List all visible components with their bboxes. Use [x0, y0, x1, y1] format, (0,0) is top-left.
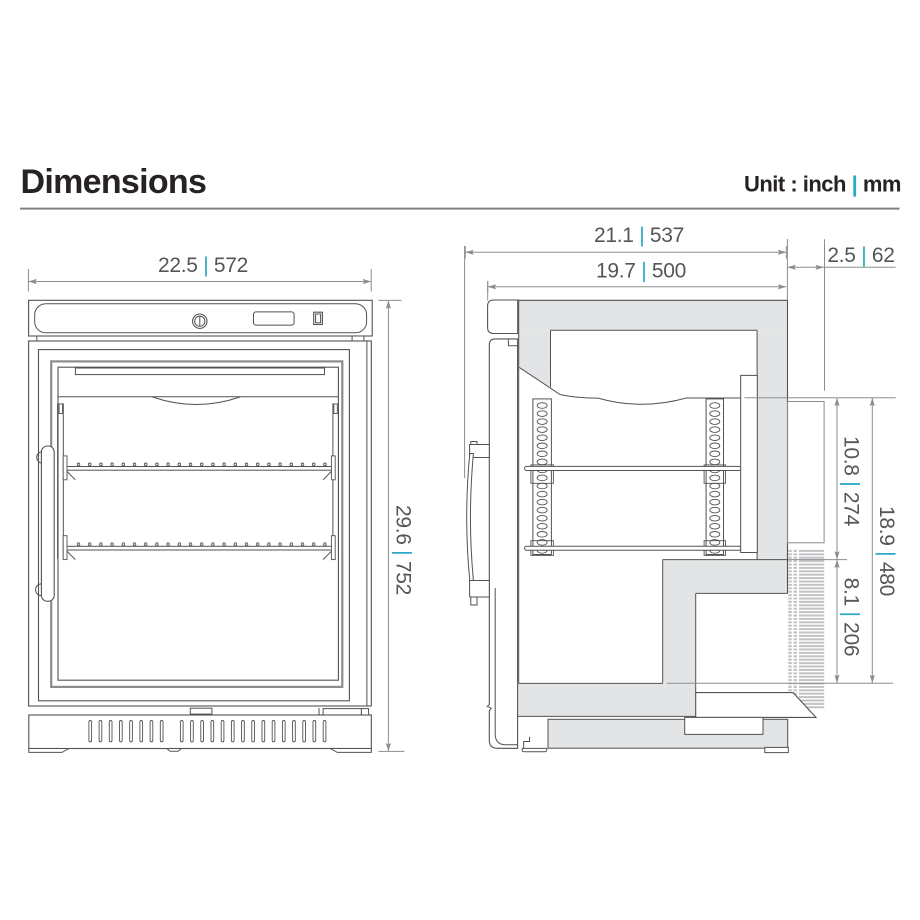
- svg-text:10.8 | 274: 10.8 | 274: [840, 436, 863, 527]
- svg-text:29.6 | 752: 29.6 | 752: [392, 505, 415, 595]
- svg-text:18.9 | 480: 18.9 | 480: [875, 506, 898, 596]
- svg-text:8.1 | 206: 8.1 | 206: [840, 578, 863, 657]
- svg-text:Unit : inch | mm: Unit : inch | mm: [744, 172, 901, 197]
- svg-text:22.5 | 572: 22.5 | 572: [158, 254, 248, 277]
- svg-text:21.1 | 537: 21.1 | 537: [594, 224, 684, 247]
- svg-text:19.7 | 500: 19.7 | 500: [596, 260, 686, 283]
- svg-text:2.5 | 62: 2.5 | 62: [827, 244, 894, 267]
- svg-text:Dimensions: Dimensions: [21, 163, 207, 201]
